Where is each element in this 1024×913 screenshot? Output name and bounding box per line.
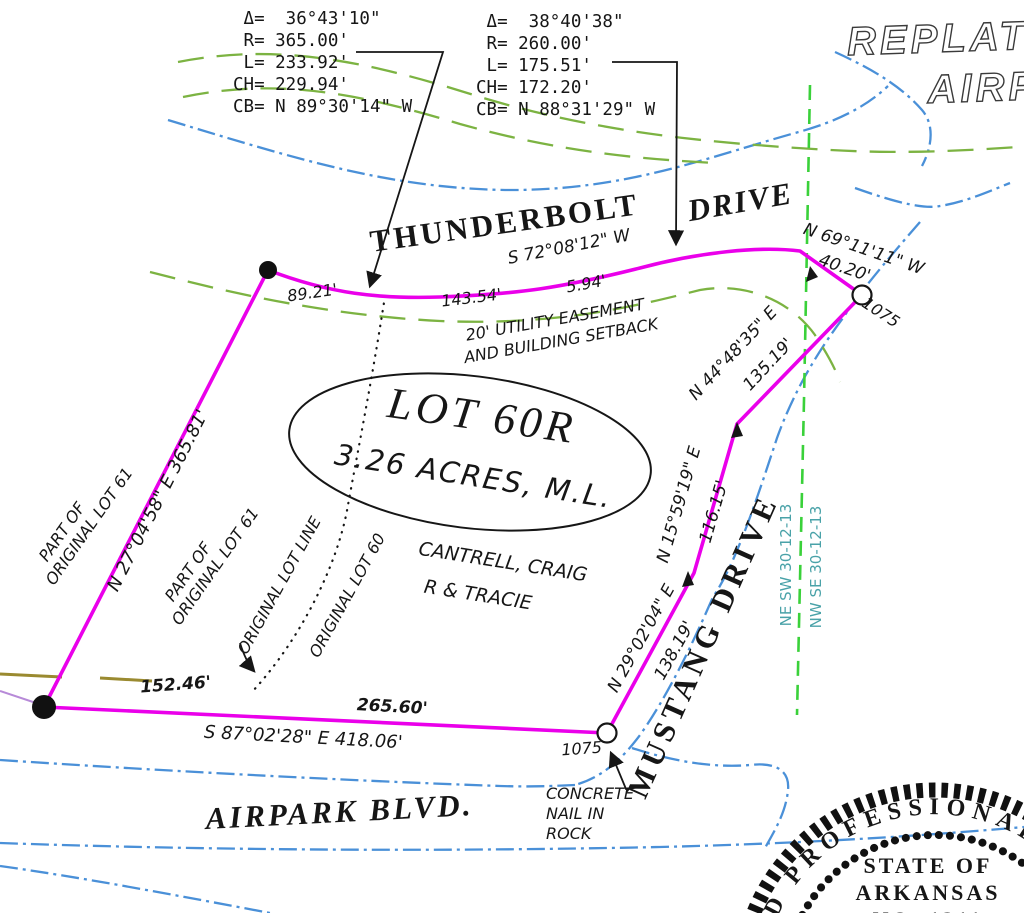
seal-number: NO. 1211 — [873, 907, 984, 913]
olive-dash-1 — [0, 674, 62, 677]
segment-arrow-2 — [731, 422, 743, 438]
seal-state-line1: STATE OF — [864, 853, 993, 878]
plat-drawing: Δ= 36°43'10" R= 365.00' L= 233.92' CH= 2… — [0, 0, 1024, 913]
dim-top-89: 89.21' — [286, 280, 338, 306]
dim-south-152: 152.46' — [140, 673, 212, 698]
curve1-chord-bearing: CB= N 89°30'14" W — [233, 97, 413, 117]
curve2-chord-bearing: CB= N 88°31'29" W — [476, 100, 656, 120]
found-monument-nw — [259, 261, 277, 279]
part-of-lot61-inner: PART OF ORIGINAL LOT 61 — [152, 493, 263, 628]
dim-e2-bearing: N 15°59'19" E — [653, 444, 705, 565]
seal-state-line2: ARKANSAS — [855, 880, 1000, 905]
section-label-right: NW SE 30-12-13 — [807, 506, 825, 629]
curve2-length: L= 175.51' — [476, 56, 592, 76]
found-monument-sw — [32, 695, 56, 719]
airpark-centerline-upper — [0, 760, 575, 786]
owner-name-2: R & TRACIE — [422, 576, 533, 615]
surveyor-seal: SED PROFESSIONAL STATE OF ARKANSAS NO. 1… — [740, 790, 1024, 913]
dim-e2-dist: 116.15' — [696, 478, 733, 545]
curve1-chord: CH= 229.94' — [233, 75, 349, 95]
sheet-title-replat: REPLAT — [846, 14, 1024, 64]
curve1-delta: Δ= 36°43'10" — [233, 9, 381, 29]
dim-south-bearing: S 87°02'28" E 418.06' — [203, 722, 403, 753]
curve1-radius: R= 365.00' — [233, 31, 349, 51]
nail-note-line1: CONCRETE — [546, 784, 635, 803]
sheet-title-airpark: AIRP. — [926, 64, 1024, 112]
street-airpark-blvd: AIRPARK BLVD. — [203, 787, 475, 836]
nail-note-line3: ROCK — [546, 824, 593, 843]
nail-note-line2: NAIL IN — [546, 804, 604, 823]
bottom-left-centerline — [0, 866, 270, 913]
concrete-nail-note: CONCRETE NAIL IN ROCK — [546, 784, 635, 843]
dim-top-143: 143.54' — [440, 284, 502, 310]
adjacent-parcel-lines — [0, 674, 152, 706]
street-thunderbolt-drive: DRIVE — [684, 175, 796, 228]
plat-sheet: Δ= 36°43'10" R= 365.00' L= 233.92' CH= 2… — [0, 0, 1024, 913]
lot-name: LOT 60R — [384, 378, 580, 453]
centerline-return — [855, 183, 1010, 207]
curve-table-1: Δ= 36°43'10" R= 365.00' L= 233.92' CH= 2… — [233, 9, 413, 117]
centerline-corner — [835, 52, 931, 166]
curve1-length: L= 233.92' — [233, 53, 349, 73]
monument-id-top: 1075 — [859, 293, 903, 331]
dim-south-265: 265.60' — [356, 695, 428, 719]
dim-top-594: 5.94' — [565, 271, 608, 297]
curve2-delta: Δ= 38°40'38" — [476, 12, 624, 32]
curve-table-2: Δ= 38°40'38" R= 260.00' L= 175.51' CH= 1… — [476, 12, 656, 120]
curve2-radius: R= 260.00' — [476, 34, 592, 54]
monument-id-bottom: 1075 — [561, 738, 603, 760]
curve2-chord: CH= 172.20' — [476, 78, 592, 98]
section-label-left: NE SW 30-12-13 — [777, 504, 795, 627]
